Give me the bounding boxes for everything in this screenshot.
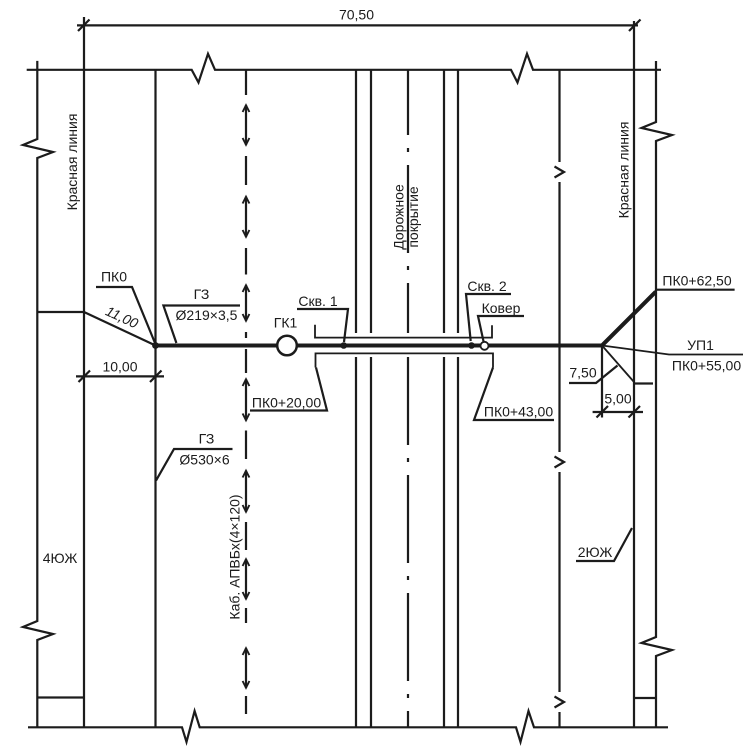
svg-text:ПК0+62,50: ПК0+62,50 — [662, 273, 731, 289]
svg-text:ГК1: ГК1 — [274, 315, 298, 331]
svg-text:Скв. 1: Скв. 1 — [298, 293, 337, 309]
svg-text:ПК0: ПК0 — [101, 269, 127, 285]
svg-text:Красная линия: Красная линия — [64, 114, 80, 211]
svg-text:УП1: УП1 — [687, 337, 714, 353]
svg-text:7,50: 7,50 — [569, 365, 596, 381]
svg-text:Каб. АПВБх(4×120): Каб. АПВБх(4×120) — [227, 494, 243, 619]
svg-text:10,00: 10,00 — [102, 359, 137, 375]
svg-text:2ЮЖ: 2ЮЖ — [578, 544, 613, 560]
svg-text:покрытие: покрытие — [405, 186, 421, 248]
svg-text:Ковер: Ковер — [482, 300, 521, 316]
svg-text:ПК0+55,00: ПК0+55,00 — [672, 358, 741, 374]
svg-text:ПК0+43,00: ПК0+43,00 — [484, 404, 553, 420]
svg-text:Ø530×6: Ø530×6 — [179, 452, 229, 468]
svg-text:ПК0+20,00: ПК0+20,00 — [252, 395, 321, 411]
svg-text:Ø219×3,5: Ø219×3,5 — [176, 307, 238, 323]
svg-text:ГЗ: ГЗ — [199, 431, 215, 447]
svg-text:70,50: 70,50 — [339, 6, 374, 22]
svg-text:5,00: 5,00 — [604, 391, 631, 407]
svg-text:4ЮЖ: 4ЮЖ — [43, 550, 78, 566]
svg-text:ГЗ: ГЗ — [194, 286, 210, 302]
svg-text:Скв. 2: Скв. 2 — [467, 278, 506, 294]
svg-text:Красная линия: Красная линия — [616, 122, 632, 219]
